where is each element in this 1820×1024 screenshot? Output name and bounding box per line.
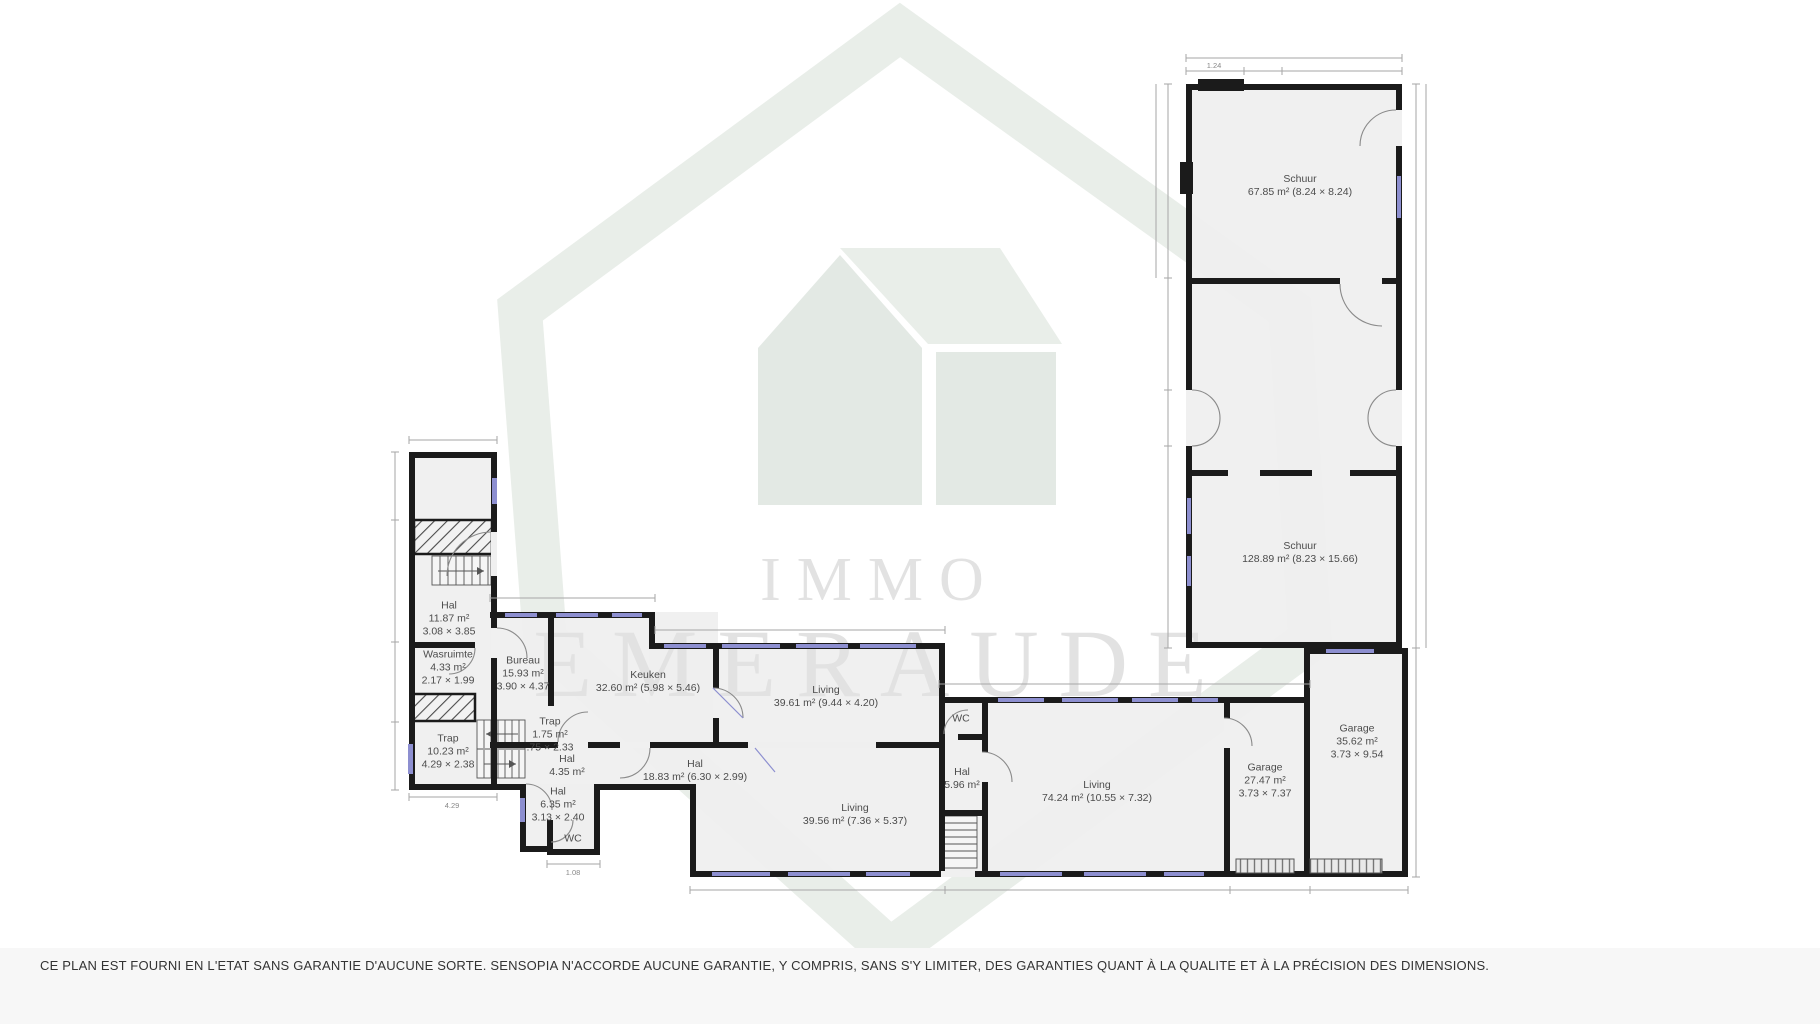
watermark-brand-line1: IMMO bbox=[760, 546, 1000, 614]
room-label-hal-11: Hal 11.87 m² 3.08 × 3.85 bbox=[423, 600, 476, 639]
room-label-schuur-top: Schuur 67.85 m² (8.24 × 8.24) bbox=[1248, 173, 1352, 199]
room-dims: 3.73 × 7.37 bbox=[1239, 788, 1292, 801]
staircase-bottom-center bbox=[941, 816, 977, 868]
room-name: Schuur bbox=[1242, 540, 1358, 553]
room-area: 6.35 m² bbox=[532, 799, 585, 812]
room-dims: 3.90 × 4.37 bbox=[497, 681, 550, 694]
room-area: 39.61 m² (9.44 × 4.20) bbox=[774, 697, 878, 710]
room-area: 27.47 m² bbox=[1239, 775, 1292, 788]
room-name: Keuken bbox=[596, 669, 700, 682]
room-name: WC bbox=[952, 713, 970, 726]
room-label-living-39b: Living 39.56 m² (7.36 × 5.37) bbox=[803, 802, 907, 828]
room-dims: 2.17 × 1.99 bbox=[422, 675, 475, 688]
room-area: 74.24 m² (10.55 × 7.32) bbox=[1042, 792, 1152, 805]
disclaimer-text: CE PLAN EST FOURNI EN L'ETAT SANS GARANT… bbox=[40, 958, 1489, 973]
room-area: 10.23 m² bbox=[422, 746, 475, 759]
dim-label-schuur-top: 1.24 bbox=[1207, 61, 1222, 70]
room-area: 4.35 m² bbox=[549, 766, 585, 779]
room-name: Hal bbox=[423, 600, 476, 613]
room-label-wasruimte: Wasruimte 4.33 m² 2.17 × 1.99 bbox=[422, 649, 475, 688]
room-label-hal-5: Hal 5.96 m² bbox=[944, 766, 980, 792]
room-area: 39.56 m² (7.36 × 5.37) bbox=[803, 815, 907, 828]
room-name: Garage bbox=[1331, 723, 1384, 736]
room-name: Hal bbox=[643, 758, 747, 771]
room-label-garage-right: Garage 35.62 m² 3.73 × 9.54 bbox=[1331, 723, 1384, 762]
watermark-house-icon bbox=[758, 248, 1062, 505]
room-area: 32.60 m² (5.98 × 5.46) bbox=[596, 682, 700, 695]
disclaimer-bar: CE PLAN EST FOURNI EN L'ETAT SANS GARANT… bbox=[0, 948, 1820, 1024]
room-name: Living bbox=[774, 684, 878, 697]
room-name: Hal bbox=[944, 766, 980, 779]
room-label-hal-4: Hal 4.35 m² bbox=[549, 753, 585, 779]
room-dims: 3.13 × 2.40 bbox=[532, 812, 585, 825]
room-name: Garage bbox=[1239, 762, 1292, 775]
room-label-hal-6: Hal 6.35 m² 3.13 × 2.40 bbox=[532, 786, 585, 825]
staircase-center bbox=[477, 720, 525, 778]
room-label-trap-10: Trap 10.23 m² 4.29 × 2.38 bbox=[422, 733, 475, 772]
room-area: 18.83 m² (6.30 × 2.99) bbox=[643, 771, 747, 784]
room-dims: 3.08 × 3.85 bbox=[423, 626, 476, 639]
room-area: 128.89 m² (8.23 × 15.66) bbox=[1242, 553, 1358, 566]
room-dims: 4.29 × 2.38 bbox=[422, 759, 475, 772]
floorplan-canvas: IMMO EMERAUDE bbox=[0, 0, 1820, 1024]
room-name: Trap bbox=[422, 733, 475, 746]
room-name: Hal bbox=[549, 753, 585, 766]
room-label-living-74: Living 74.24 m² (10.55 × 7.32) bbox=[1042, 779, 1152, 805]
room-label-schuur-main: Schuur 128.89 m² (8.23 × 15.66) bbox=[1242, 540, 1358, 566]
room-label-hal-18: Hal 18.83 m² (6.30 × 2.99) bbox=[643, 758, 747, 784]
room-label-bureau: Bureau 15.93 m² 3.90 × 4.37 bbox=[497, 655, 550, 694]
room-label-wc-left: WC bbox=[564, 833, 582, 846]
room-name: Schuur bbox=[1248, 173, 1352, 186]
dim-label-trap-width: 4.29 bbox=[445, 801, 460, 810]
room-area: 11.87 m² bbox=[423, 613, 476, 626]
room-label-keuken: Keuken 32.60 m² (5.98 × 5.46) bbox=[596, 669, 700, 695]
floorplan-drawing: IMMO EMERAUDE bbox=[0, 0, 1820, 1024]
room-label-garage-left: Garage 27.47 m² 3.73 × 7.37 bbox=[1239, 762, 1292, 801]
room-name: Trap bbox=[527, 716, 574, 729]
room-name: Bureau bbox=[497, 655, 550, 668]
room-label-wc-right: WC bbox=[952, 713, 970, 726]
dim-label-wc-bottom: 1.08 bbox=[566, 868, 581, 877]
room-area: 4.33 m² bbox=[422, 662, 475, 675]
staircase-left-wing bbox=[432, 556, 491, 585]
room-label-trap-1: Trap 1.75 m² .75 × 2.33 bbox=[527, 716, 574, 755]
room-area: 5.96 m² bbox=[944, 779, 980, 792]
room-name: Wasruimte bbox=[422, 649, 475, 662]
room-area: 35.62 m² bbox=[1331, 736, 1384, 749]
room-name: Hal bbox=[532, 786, 585, 799]
room-name: WC bbox=[564, 833, 582, 846]
room-area: 15.93 m² bbox=[497, 668, 550, 681]
room-name: Living bbox=[803, 802, 907, 815]
room-area: 1.75 m² bbox=[527, 729, 574, 742]
room-dims: 3.73 × 9.54 bbox=[1331, 749, 1384, 762]
room-name: Living bbox=[1042, 779, 1152, 792]
room-label-living-39a: Living 39.61 m² (9.44 × 4.20) bbox=[774, 684, 878, 710]
room-area: 67.85 m² (8.24 × 8.24) bbox=[1248, 186, 1352, 199]
